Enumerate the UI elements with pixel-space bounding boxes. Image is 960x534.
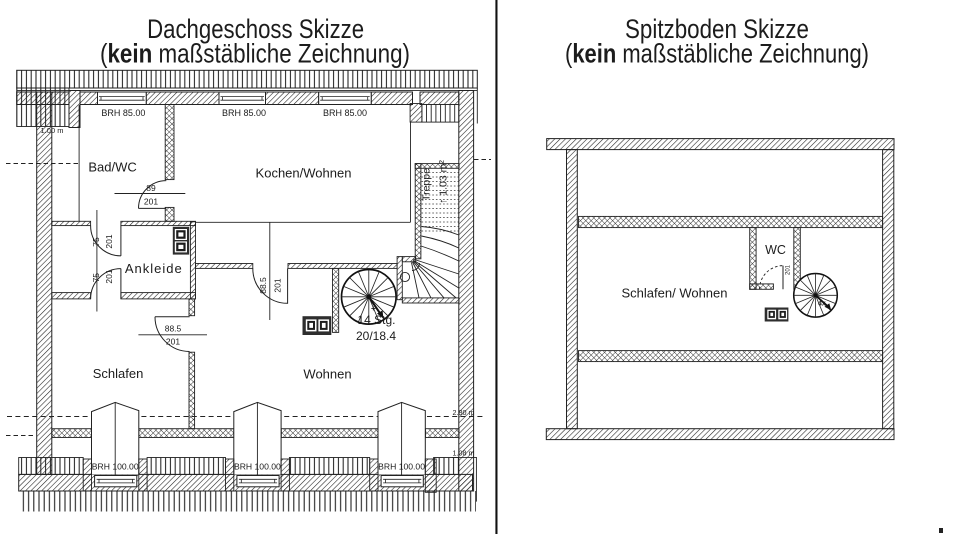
svg-text:BRH 100.00: BRH 100.00 — [234, 462, 281, 472]
svg-text:+: + — [371, 304, 376, 313]
svg-text:(kein maßstäbliche Zeichnung): (kein maßstäbliche Zeichnung) — [100, 39, 410, 69]
svg-text:20/18.4: 20/18.4 — [356, 329, 396, 343]
svg-text:Ankleide: Ankleide — [125, 261, 183, 276]
svg-text:201: 201 — [166, 337, 180, 347]
svg-text:201: 201 — [104, 269, 114, 283]
svg-text:↑ 1.03 m²: ↑ 1.03 m² — [437, 160, 449, 204]
svg-text:Bad/WC: Bad/WC — [88, 160, 136, 175]
svg-text:BRH 85.00: BRH 85.00 — [101, 108, 145, 118]
svg-text:Schlafen/ Wohnen: Schlafen/ Wohnen — [622, 286, 728, 301]
svg-text:201: 201 — [144, 197, 158, 207]
svg-text:1.08 m: 1.08 m — [453, 449, 475, 458]
svg-text:BRH 100.00: BRH 100.00 — [92, 462, 139, 472]
svg-text:201: 201 — [786, 264, 792, 275]
svg-text:75: 75 — [91, 237, 101, 247]
svg-text:BRH 85.00: BRH 85.00 — [222, 108, 266, 118]
svg-text:BRH 100.00: BRH 100.00 — [378, 462, 425, 472]
svg-text:WC: WC — [765, 243, 786, 257]
svg-text:201: 201 — [272, 278, 282, 292]
svg-text:Wohnen: Wohnen — [303, 367, 351, 382]
svg-text:(kein maßstäbliche Zeichnung): (kein maßstäbliche Zeichnung) — [565, 39, 869, 69]
svg-text:14 Stg.: 14 Stg. — [357, 313, 395, 327]
svg-text:88.5: 88.5 — [258, 277, 268, 294]
svg-text:Treppe: Treppe — [421, 168, 433, 201]
svg-text:2.80 m: 2.80 m — [453, 408, 475, 417]
svg-text:201: 201 — [104, 234, 114, 248]
svg-text:75: 75 — [91, 273, 101, 283]
svg-text:4x: 4x — [818, 301, 826, 308]
svg-text:89: 89 — [146, 183, 156, 193]
svg-text:Schlafen: Schlafen — [93, 366, 144, 381]
svg-text:Kochen/Wohnen: Kochen/Wohnen — [256, 166, 352, 181]
svg-text:88.5: 88.5 — [165, 324, 182, 334]
svg-text:BRH 85.00: BRH 85.00 — [323, 108, 367, 118]
